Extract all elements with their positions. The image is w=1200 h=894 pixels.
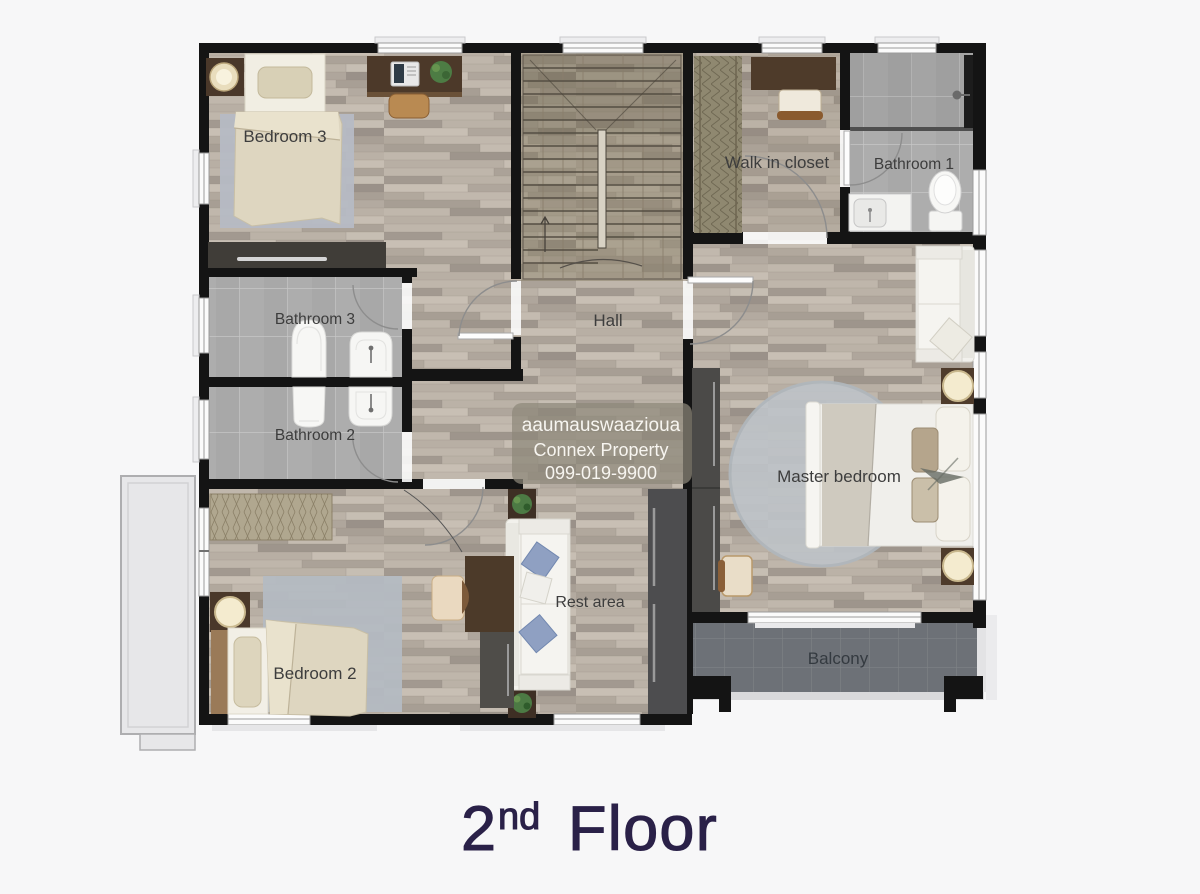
- svg-text:nd: nd: [498, 796, 540, 838]
- svg-text:aaumauswaazioua: aaumauswaazioua: [522, 415, 681, 436]
- svg-text:Bedroom 2: Bedroom 2: [273, 664, 356, 683]
- svg-text:099-019-9900: 099-019-9900: [545, 463, 657, 483]
- svg-text:Bathroom 2: Bathroom 2: [275, 427, 355, 444]
- svg-text:Bedroom 3: Bedroom 3: [243, 127, 326, 146]
- svg-text:Bathroom 1: Bathroom 1: [874, 156, 954, 173]
- svg-text:Rest area: Rest area: [555, 594, 624, 611]
- svg-text:Walk in closet: Walk in closet: [725, 153, 830, 172]
- svg-text:Balcony: Balcony: [808, 649, 869, 668]
- svg-text:Bathroom 3: Bathroom 3: [275, 311, 355, 328]
- svg-text:Connex Property: Connex Property: [533, 440, 668, 460]
- svg-text:Floor: Floor: [568, 794, 718, 864]
- svg-text:Master bedroom: Master bedroom: [777, 467, 901, 486]
- svg-text:Hall: Hall: [593, 311, 622, 330]
- svg-text:2: 2: [461, 794, 496, 864]
